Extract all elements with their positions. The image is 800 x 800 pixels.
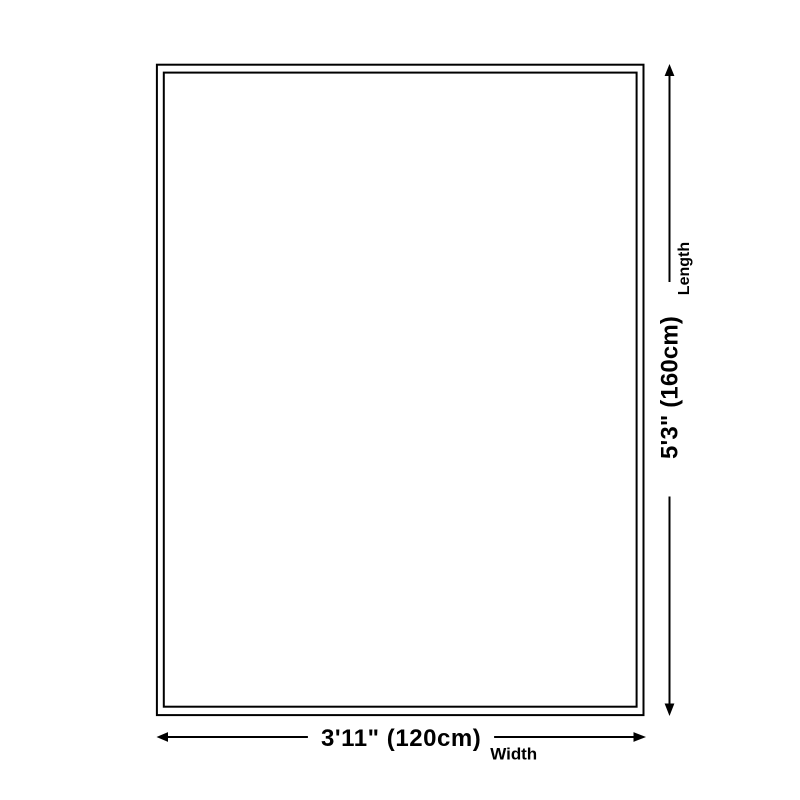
svg-text:5'3" (160cm): 5'3" (160cm) [656, 316, 683, 459]
svg-text:3'11" (120cm): 3'11" (120cm) [321, 725, 481, 752]
svg-text:Length: Length [676, 242, 693, 295]
svg-text:Width: Width [490, 745, 537, 764]
